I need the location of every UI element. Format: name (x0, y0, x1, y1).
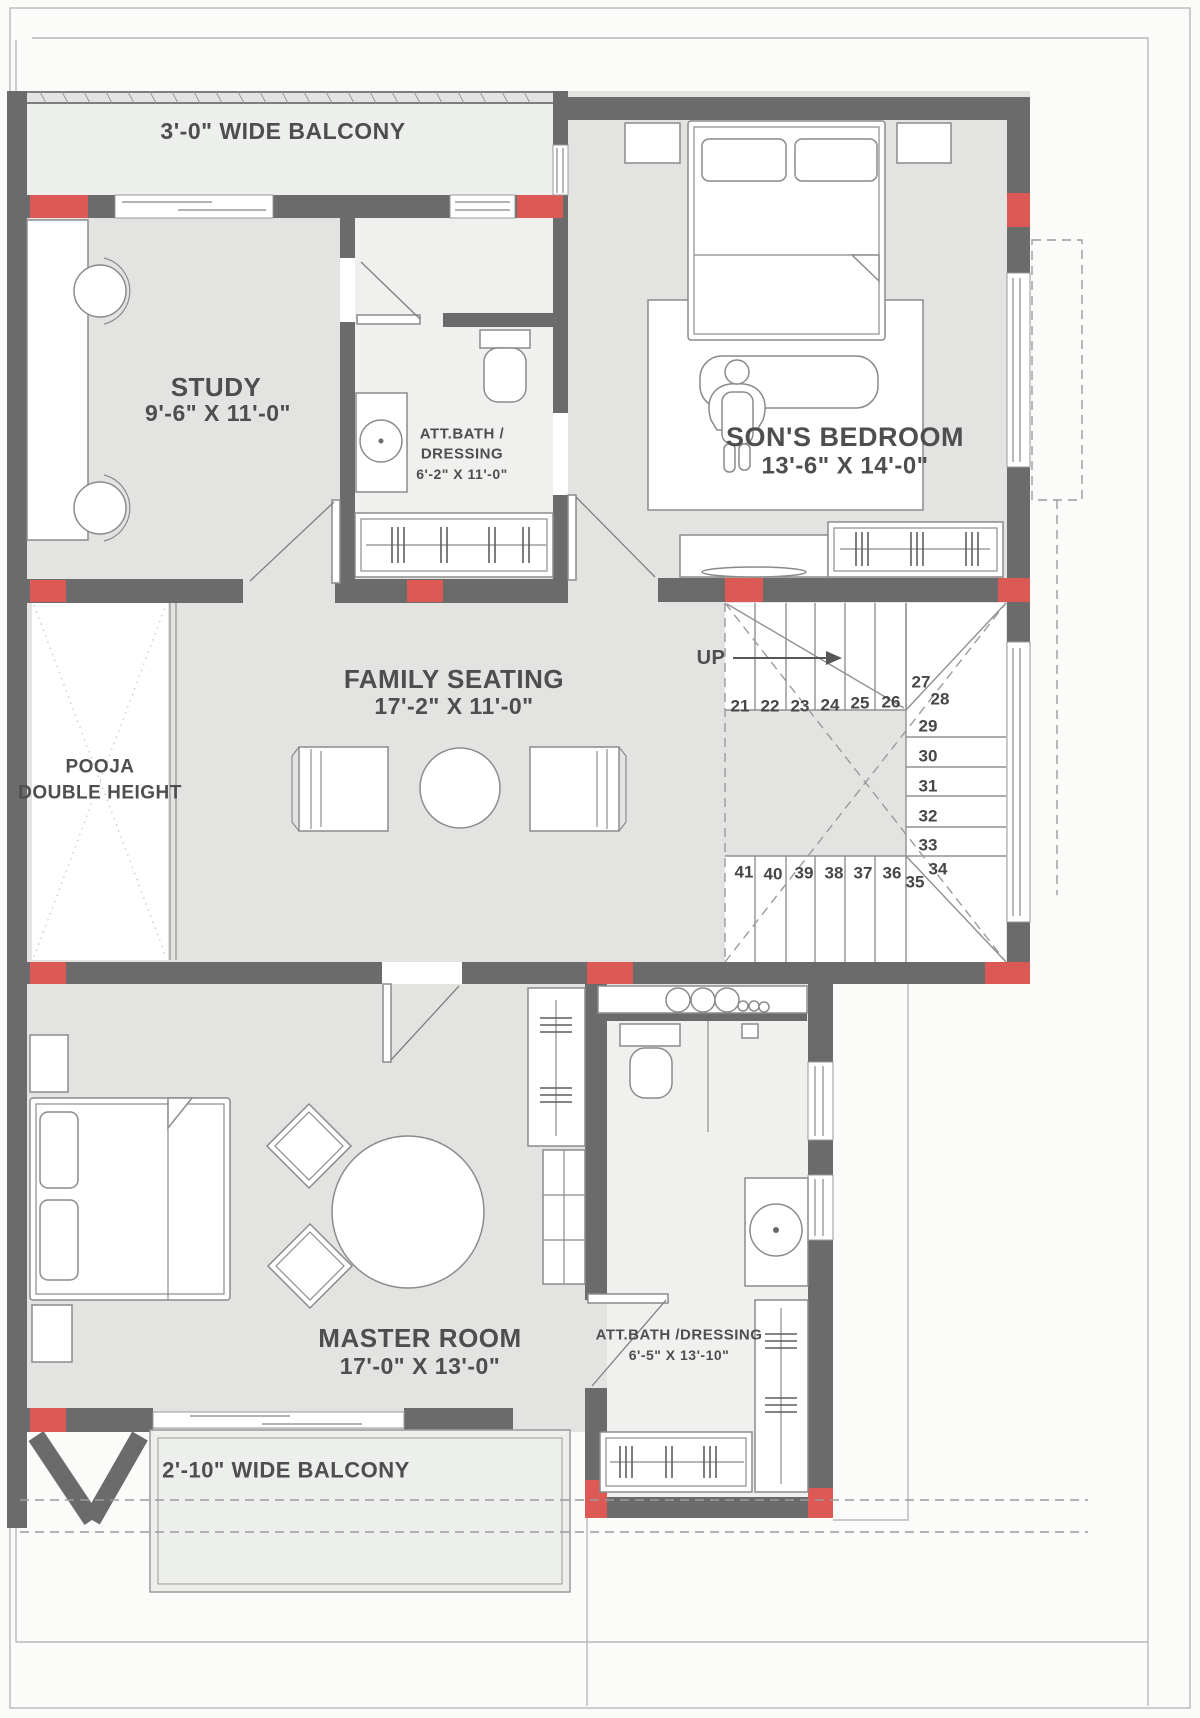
bath-master-dims: 6'-5" X 13'-10" (629, 1347, 730, 1363)
bath-master-door-leaf (588, 1294, 668, 1303)
stair-void (725, 710, 906, 856)
toilet-bowl-icon (484, 348, 526, 402)
master-bed-icon (30, 1098, 230, 1300)
step-number: 36 (883, 864, 902, 883)
study-chair-icon (74, 265, 126, 317)
master-wardrobe (528, 988, 585, 1146)
armchair-icon (292, 747, 388, 831)
step-number: 35 (906, 873, 925, 892)
side-table (30, 1035, 68, 1092)
step-number: 34 (929, 860, 948, 879)
floor-plan-page: UP 21 22 23 24 25 26 27 28 29 30 31 32 3… (0, 0, 1200, 1718)
sons-bedroom-label: SON'S BEDROOM (726, 422, 964, 452)
master-room-dims: 17'-0" X 13'-0" (340, 1353, 500, 1379)
master-door-leaf (383, 984, 391, 1062)
tv-icon (702, 567, 806, 577)
step-number: 24 (821, 696, 840, 715)
step-number: 23 (791, 697, 810, 716)
study-dims: 9'-6" X 11'-0" (145, 400, 291, 426)
pooja-label-2: DOUBLE HEIGHT (18, 783, 182, 804)
step-number: 38 (825, 864, 844, 883)
pillow-icon (40, 1200, 78, 1280)
study-balcony-window (115, 195, 273, 218)
balcony-top-label: 3'-0" WIDE BALCONY (160, 118, 405, 144)
shower-icon (742, 1024, 758, 1038)
bath-master-window-2 (808, 1175, 833, 1240)
armchair-icon (530, 747, 626, 831)
dressing-wardrobe-bottom (600, 1432, 752, 1492)
pillow-icon (795, 139, 877, 181)
bath-top-door-leaf (357, 315, 420, 324)
step-number: 25 (851, 694, 870, 713)
floor-plan-drawing: UP 21 22 23 24 25 26 27 28 29 30 31 32 3… (0, 0, 1200, 1718)
bedroom-door-leaf (568, 495, 576, 580)
study-label: STUDY (171, 372, 262, 402)
round-table-icon (332, 1136, 484, 1288)
toilet-tank-icon (480, 330, 530, 348)
master-cabinet (543, 1150, 585, 1284)
step-number: 39 (795, 864, 814, 883)
study-door-leaf (332, 500, 340, 583)
side-table (32, 1305, 72, 1362)
study-chair-icon (74, 482, 126, 534)
bath-top-window (450, 195, 515, 218)
stair-east-window (1007, 642, 1030, 922)
bath-top-label-1: ATT.BATH / (420, 426, 505, 443)
pillow-icon (40, 1112, 78, 1188)
washbasin-drain (773, 1227, 779, 1233)
bedroom-balcony-window (553, 145, 568, 195)
washbasin-drain (379, 439, 384, 444)
side-table (897, 123, 951, 163)
bath-master-label: ATT.BATH /DRESSING (596, 1327, 763, 1344)
stair-up-label: UP (697, 647, 726, 669)
side-table (625, 123, 680, 163)
pooja-void-floor (32, 603, 168, 960)
step-number: 33 (919, 836, 938, 855)
step-number: 30 (919, 747, 938, 766)
balcony-bottom-label: 2'-10" WIDE BALCONY (162, 1458, 410, 1483)
sons-bedroom-east-window (1007, 273, 1030, 467)
step-number: 37 (854, 864, 873, 883)
dressing-wardrobe-tall (755, 1300, 808, 1492)
family-seating-area (292, 747, 626, 831)
bedroom-wardrobe (828, 522, 1003, 577)
step-number: 26 (882, 693, 901, 712)
round-table-icon (420, 748, 500, 828)
bath-top-dims: 6'-2" X 11'-0" (416, 466, 508, 482)
balcony-bottom: 2'-10" WIDE BALCONY (150, 1430, 570, 1592)
step-number: 22 (761, 697, 780, 716)
sons-bedroom-dims: 13'-6" X 14'-0" (761, 453, 928, 480)
bath-master-window-1 (808, 1062, 833, 1140)
step-number: 28 (931, 690, 950, 709)
step-number: 31 (919, 777, 938, 796)
dressing-wardrobe (355, 513, 553, 577)
pillow-icon (702, 139, 786, 181)
family-seating-dims: 17'-2" X 11'-0" (374, 693, 533, 719)
bath-top-label-2: DRESSING (421, 446, 503, 463)
toilet-bowl-icon (630, 1048, 672, 1098)
planter-box (598, 986, 807, 1013)
double-bed-icon (688, 121, 885, 340)
pooja-label-1: POOJA (65, 757, 134, 778)
master-balcony-sliding-window (153, 1412, 404, 1428)
step-number: 29 (919, 717, 938, 736)
step-number: 40 (764, 865, 783, 884)
toilet-tank-icon (620, 1024, 680, 1046)
step-number: 21 (731, 697, 750, 716)
step-number: 41 (735, 863, 754, 882)
master-room-label: MASTER ROOM (318, 1323, 521, 1353)
balcony-top-floor (27, 103, 553, 195)
step-number: 32 (919, 807, 938, 826)
family-seating-label: FAMILY SEATING (344, 664, 564, 694)
step-number: 27 (912, 673, 931, 692)
